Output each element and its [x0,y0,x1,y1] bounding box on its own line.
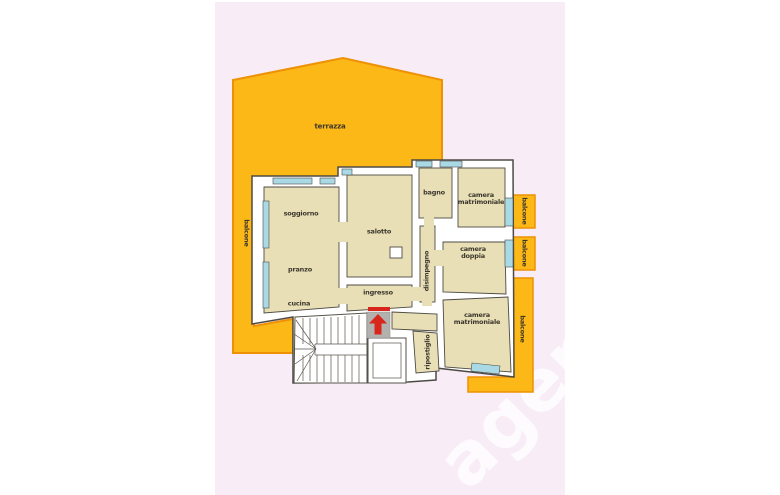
label-terrazza: terrazza [315,124,346,131]
flue-box [390,247,402,258]
label-balcone-left: balcone [243,219,250,246]
window [263,201,269,248]
window [416,161,432,167]
up-arrow-shaft [375,324,382,335]
window [505,240,513,267]
label-balcone-mid: balcone [521,239,528,266]
label-line: matrimoniale [458,199,504,206]
label-balcone-top: balcone [521,197,528,224]
door-soggiorno-salotto [336,222,350,242]
label-bagno: bagno [423,190,445,197]
window [342,169,352,175]
window [263,262,269,308]
label-cucina: cucina [288,301,310,308]
label-camera-matrimoniale-top: camera matrimoniale [458,192,504,206]
label-line: doppia [460,253,486,260]
label-ingresso: ingresso [363,290,393,297]
label-balcone-bottom: balcone [519,315,526,342]
label-disimpegno: disimpegno [424,251,431,292]
window [273,178,312,184]
room-corridor [392,312,437,331]
window [320,178,335,184]
label-camera-doppia: camera doppia [460,246,486,260]
floorplan-canvas: agenzia [0,0,780,495]
door-ingresso-disimpegno [410,287,422,301]
label-line: matrimoniale [454,319,500,326]
elevator-shaft [368,338,406,383]
door-camera-doppia [433,250,445,266]
label-camera-matrimoniale-bottom: camera matrimoniale [454,312,500,326]
floorplan-drawing: agenzia [0,0,780,495]
room-soggiorno-pranzo-cucina [264,187,339,313]
label-salotto: salotto [367,229,391,236]
door-camera-matrimoniale [422,296,432,306]
label-pranzo: pranzo [288,267,312,274]
stairwell-outline [294,313,367,383]
room-salotto [347,175,412,277]
door-cucina-ingresso [336,288,350,304]
label-ripostiglio: ripostiglio [425,334,432,369]
room-camera-matrimoniale-bottom [443,297,511,372]
entrance-door-line [368,307,390,311]
label-soggiorno: soggiorno [284,211,319,218]
window [505,198,513,226]
window [440,161,462,167]
door-bagno [424,214,434,230]
